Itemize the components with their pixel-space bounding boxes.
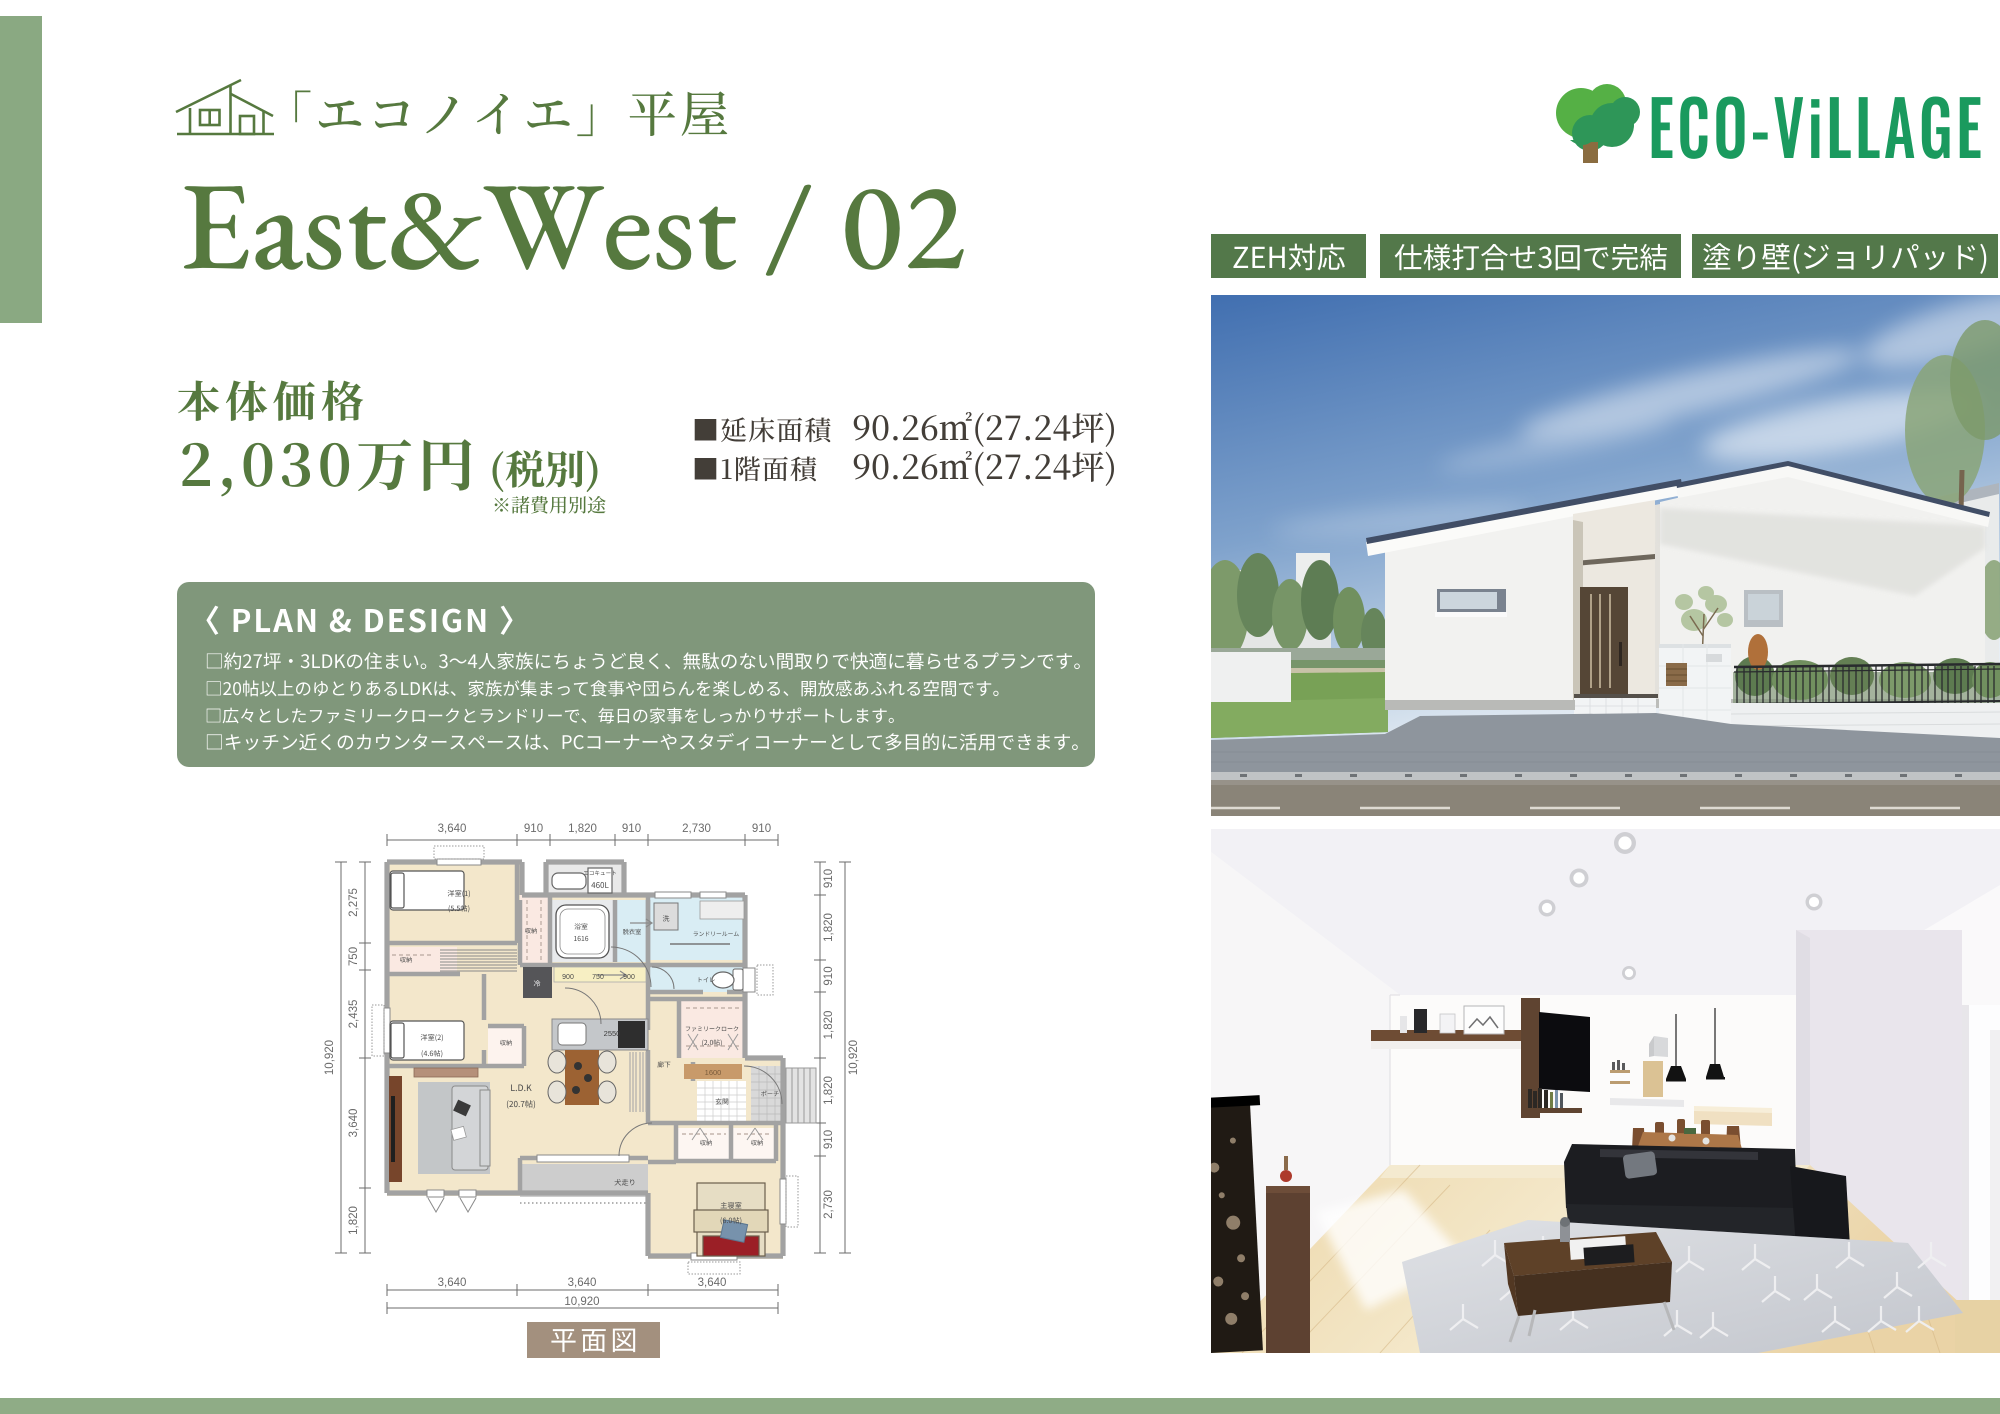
svg-text:3,640: 3,640 xyxy=(348,1109,360,1138)
svg-text:2,435: 2,435 xyxy=(348,1000,360,1029)
svg-text:3,640: 3,640 xyxy=(438,823,467,835)
svg-text:750: 750 xyxy=(348,947,360,966)
svg-text:910: 910 xyxy=(823,869,835,888)
svg-text:910: 910 xyxy=(823,1130,835,1149)
svg-text:900: 900 xyxy=(562,974,574,981)
svg-text:3,640: 3,640 xyxy=(698,1277,727,1289)
svg-text:2,730: 2,730 xyxy=(682,823,711,835)
svg-text:10,920: 10,920 xyxy=(848,1040,860,1075)
svg-text:1600: 1600 xyxy=(705,1068,722,1077)
svg-text:10,920: 10,920 xyxy=(564,1296,599,1308)
svg-text:1,820: 1,820 xyxy=(823,913,835,942)
svg-text:1,820: 1,820 xyxy=(823,1011,835,1040)
svg-text:2,730: 2,730 xyxy=(823,1190,835,1219)
svg-text:1,820: 1,820 xyxy=(823,1076,835,1105)
svg-text:2,275: 2,275 xyxy=(348,888,360,917)
svg-text:1,820: 1,820 xyxy=(568,823,597,835)
svg-text:10,920: 10,920 xyxy=(324,1040,336,1075)
svg-text:3,640: 3,640 xyxy=(568,1277,597,1289)
svg-text:910: 910 xyxy=(823,966,835,985)
svg-text:910: 910 xyxy=(622,823,641,835)
svg-text:910: 910 xyxy=(752,823,771,835)
svg-text:750: 750 xyxy=(592,974,604,981)
svg-text:910: 910 xyxy=(524,823,543,835)
svg-text:900: 900 xyxy=(623,974,635,981)
svg-text:1,820: 1,820 xyxy=(348,1206,360,1235)
svg-text:2550: 2550 xyxy=(604,1029,621,1038)
svg-text:3,640: 3,640 xyxy=(438,1277,467,1289)
